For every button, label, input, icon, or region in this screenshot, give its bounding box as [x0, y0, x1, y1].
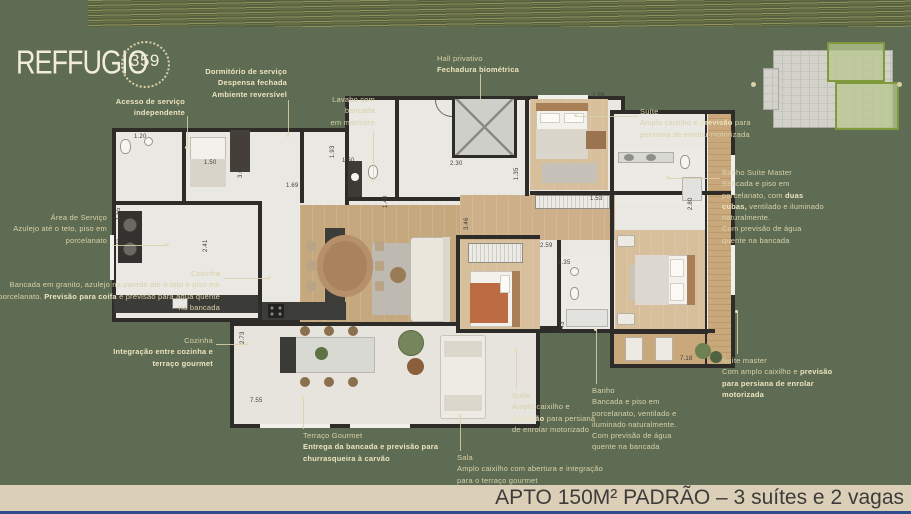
dimension-label: 3.09 [238, 166, 244, 178]
lounge-cushion [444, 341, 482, 357]
leader-line [596, 330, 597, 384]
callout-dormitorio-servico: Dormitório de serviçoDespensa fechadaAmb… [205, 66, 287, 100]
leader-dot [458, 414, 461, 417]
leader-line [303, 398, 304, 429]
leader-dot [166, 243, 169, 246]
leader-dot [514, 348, 517, 351]
leader-line [516, 350, 517, 389]
wall [460, 235, 540, 239]
dimension-label: 2.43 [560, 322, 566, 334]
pillow [670, 283, 684, 301]
leader-dot [185, 146, 188, 149]
leader-dot [574, 114, 577, 117]
deck-lounger [655, 337, 673, 361]
dimension-label: 2.80 [688, 198, 694, 210]
callout-area-servico: Área de ServiçoAzulejo até o teto, piso … [13, 212, 107, 246]
callout-banho: BanhoBancada e piso emporcelanato, venti… [592, 385, 677, 453]
pillow [670, 259, 684, 277]
leader-line [224, 278, 270, 279]
dimension-label: 1.69 [286, 183, 298, 189]
wall [182, 128, 186, 203]
stool [300, 326, 310, 336]
leader-dot [286, 134, 289, 137]
stool [324, 326, 334, 336]
wall [395, 96, 399, 197]
dimension-label: 1.35 [558, 260, 570, 266]
callout-suite-master: Suíte masterCom amplo caixilho e previsã… [722, 355, 832, 400]
callout-banho-suite-master: Banho Suíte MasterBancada e piso emporce… [722, 167, 824, 246]
leader-dot [594, 328, 597, 331]
dimension-label: 1.50 [204, 160, 216, 166]
armchair [617, 235, 635, 247]
keyplan-unit-highlight-bottom [835, 82, 899, 130]
dimension-label: 2.30 [450, 161, 462, 167]
apartment-title: APTO 150M² PADRÃO – 3 suítes e 2 vagas [0, 485, 911, 511]
wall [610, 145, 614, 335]
leader-line [737, 312, 738, 354]
wall [557, 240, 561, 333]
dining-chair [375, 241, 384, 251]
bottom-title-bar: APTO 150M² PADRÃO – 3 suítes e 2 vagas [0, 485, 911, 511]
keyplan-right-dot-icon [897, 82, 902, 87]
island-plant [315, 347, 328, 360]
callout-acesso-servico: Acesso de serviçoindependente [116, 96, 185, 119]
window [260, 424, 330, 428]
stool [348, 377, 358, 387]
leader-dot [371, 179, 374, 182]
leader-line [480, 74, 481, 102]
wall [456, 235, 460, 333]
stove [268, 304, 284, 318]
wood-grain-band [88, 0, 911, 27]
stool [324, 377, 334, 387]
dimension-label: 2.73 [240, 332, 246, 344]
lavabo-basin [351, 173, 359, 181]
dining-chair [375, 261, 384, 271]
callout-terraco-gourmet: Terraço GourmetEntrega da bancada e prev… [303, 430, 438, 464]
keyplan-thumbnail [763, 40, 905, 140]
leader-line [460, 416, 461, 451]
dining-chair [375, 281, 384, 291]
dimension-label: 3.46 [464, 218, 470, 230]
wall [300, 128, 304, 203]
dimension-label: 1.20 [134, 134, 146, 140]
leader-dot [735, 310, 738, 313]
plant [710, 351, 722, 363]
dining-chair [307, 241, 316, 251]
marketing-floorplan-page: REFFUGIO 359 [0, 0, 911, 514]
dining-table [317, 235, 373, 297]
basin [624, 154, 634, 161]
master-headboard [687, 255, 695, 305]
window [350, 424, 410, 428]
callout-sala: SalaAmplo caixilho com abertura e integr… [457, 452, 603, 486]
dimension-label: 2.59 [540, 243, 552, 249]
wall [112, 201, 260, 205]
basin [646, 154, 656, 161]
callout-suite-2: SuíteAmplo caixilho eprevisão para persi… [512, 390, 595, 435]
sofa-backrest [443, 237, 450, 322]
pillow [540, 113, 560, 123]
terrace-island-cooktop [280, 337, 296, 373]
leader-line [288, 100, 289, 136]
dimension-label: 1.55 [116, 208, 122, 220]
leader-dot [666, 176, 669, 179]
wall [460, 329, 715, 333]
stool [300, 377, 310, 387]
master-blanket [635, 255, 669, 305]
leader-line [373, 131, 374, 181]
deck-lounger [625, 337, 643, 361]
lounge-cushion [444, 395, 482, 411]
suite1-rug [542, 163, 597, 183]
suite1-blanket [536, 129, 588, 159]
keyplan-west-wing [763, 68, 779, 110]
dimension-label: 1.35 [514, 168, 520, 180]
dimension-label: 3.01 [116, 240, 128, 246]
toilet [120, 139, 131, 154]
dimension-label: 1.40 [383, 196, 389, 208]
leader-line [576, 116, 638, 117]
callout-hall-privativo: Hall privativoFechadura biométrica [437, 53, 519, 76]
keyplan-left-dot-icon [751, 82, 756, 87]
window [538, 95, 588, 99]
master-bath-toilet [680, 155, 690, 169]
dimension-label: 1.53 [590, 196, 602, 202]
dimension-label: 1.50 [342, 158, 354, 164]
suite2-headboard [512, 271, 520, 327]
dining-chair [307, 281, 316, 291]
dimension-label: 7.55 [250, 398, 262, 404]
bath2-sink [570, 267, 579, 276]
round-table-brown [407, 358, 424, 375]
leader-dot [301, 396, 304, 399]
wall [345, 197, 460, 201]
leader-line [216, 344, 248, 345]
dimension-label: 3.81 [296, 302, 302, 314]
dining-chair [307, 261, 316, 271]
round-table-green [398, 330, 424, 356]
window [731, 245, 735, 295]
callout-cozinha: CozinhaBancada em granito, azulejo na pa… [0, 268, 220, 313]
leader-line [668, 178, 720, 179]
callout-suite: SuíteAmplo caixilho e previsão parapersi… [640, 106, 751, 140]
dimension-label: 7.18 [680, 356, 692, 362]
room-terrace [230, 322, 540, 428]
plant [695, 343, 711, 359]
wall [705, 114, 707, 364]
leader-line [187, 116, 188, 148]
elevator-shaft [452, 96, 517, 158]
callout-cozinha-integracao: CozinhaIntegração entre cozinha eterraço… [113, 335, 213, 369]
suite1-headboard [536, 103, 588, 111]
dimension-label: 2.41 [203, 240, 209, 252]
coffee-table [390, 267, 406, 283]
leader-dot [246, 342, 249, 345]
dimension-label: 2.99 [592, 93, 604, 99]
bath2-toilet [570, 287, 579, 300]
pillow [500, 275, 510, 293]
stool [348, 326, 358, 336]
suite1-shelf [586, 131, 606, 149]
dimension-label: 1.93 [330, 146, 336, 158]
dimension-label: 2.37 [248, 308, 260, 314]
suite2-wardrobe [468, 243, 523, 263]
keyplan-unit-highlight-top [827, 42, 885, 82]
leader-dot [268, 276, 271, 279]
wall [525, 96, 529, 196]
logo-number: 359 [130, 51, 160, 71]
callout-lavabo: Lavabo combancadaem mármore [330, 94, 375, 128]
armchair [617, 313, 635, 325]
bath2-shower [566, 309, 608, 327]
